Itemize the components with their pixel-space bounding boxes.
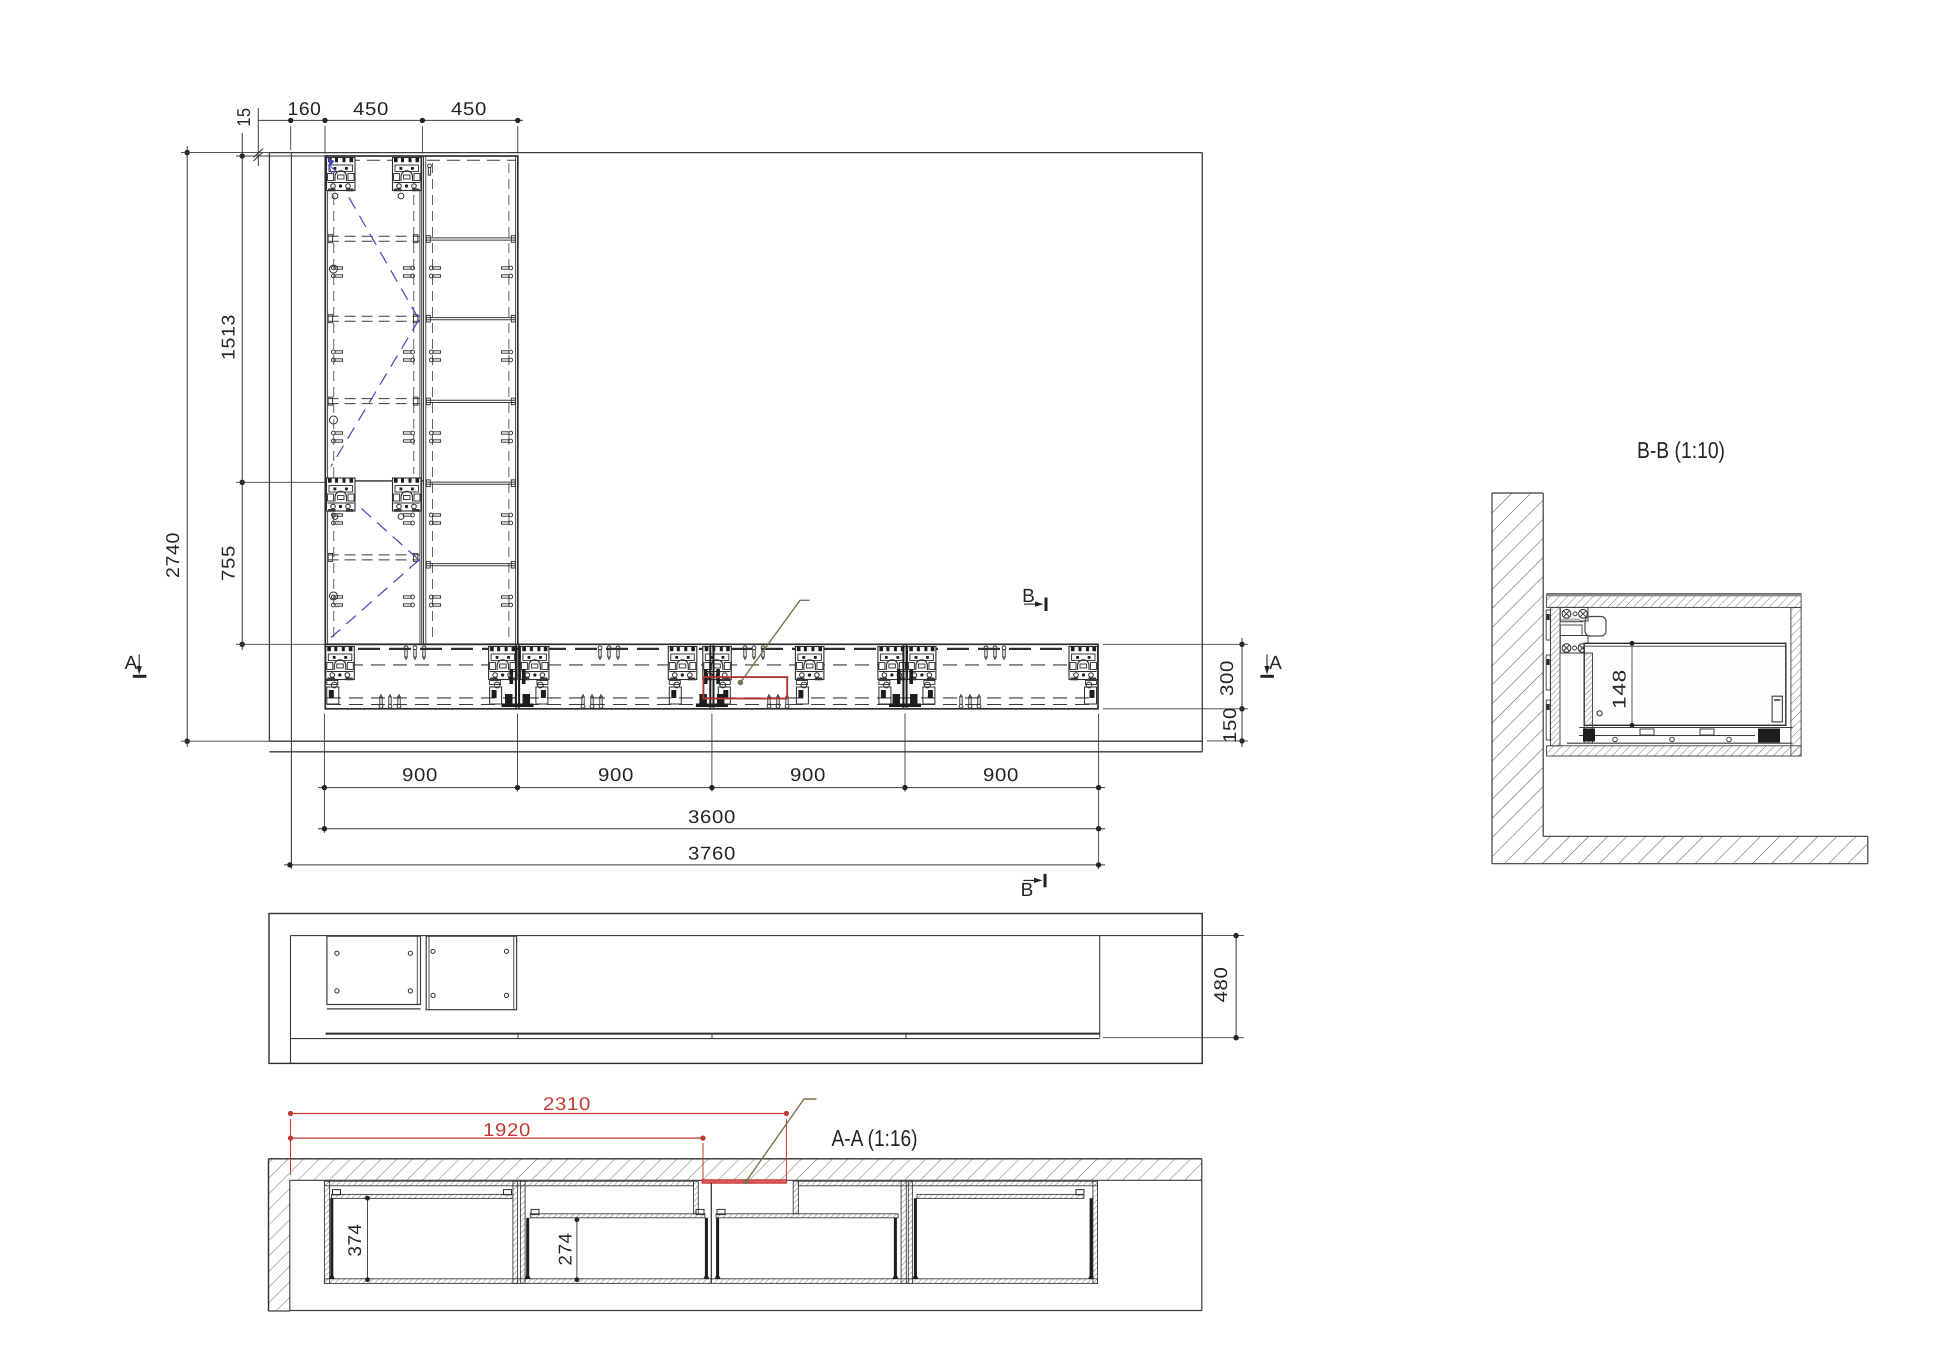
- svg-text:755: 755: [218, 545, 239, 581]
- svg-text:3760: 3760: [688, 843, 736, 864]
- svg-text:480: 480: [1210, 967, 1231, 1003]
- svg-text:1513: 1513: [218, 314, 239, 360]
- svg-text:374: 374: [344, 1224, 365, 1257]
- svg-text:B: B: [1021, 880, 1034, 901]
- svg-text:A-A (1:16): A-A (1:16): [832, 1125, 918, 1151]
- svg-text:300: 300: [1216, 660, 1237, 696]
- svg-text:1920: 1920: [483, 1119, 531, 1140]
- svg-text:148: 148: [1609, 669, 1630, 709]
- svg-text:150: 150: [1219, 707, 1240, 743]
- svg-text:2740: 2740: [162, 532, 183, 578]
- svg-text:900: 900: [598, 764, 634, 785]
- svg-text:B-B (1:10): B-B (1:10): [1637, 437, 1725, 463]
- svg-text:900: 900: [790, 764, 826, 785]
- svg-text:900: 900: [402, 764, 438, 785]
- svg-text:450: 450: [451, 98, 487, 119]
- svg-text:A: A: [125, 653, 138, 674]
- svg-text:900: 900: [983, 764, 1019, 785]
- svg-text:A: A: [1269, 653, 1282, 674]
- svg-text:274: 274: [555, 1233, 576, 1266]
- svg-text:3600: 3600: [688, 806, 736, 827]
- svg-text:450: 450: [353, 98, 389, 119]
- svg-text:160: 160: [288, 98, 322, 119]
- svg-text:15: 15: [233, 108, 254, 127]
- svg-text:2310: 2310: [543, 1093, 591, 1114]
